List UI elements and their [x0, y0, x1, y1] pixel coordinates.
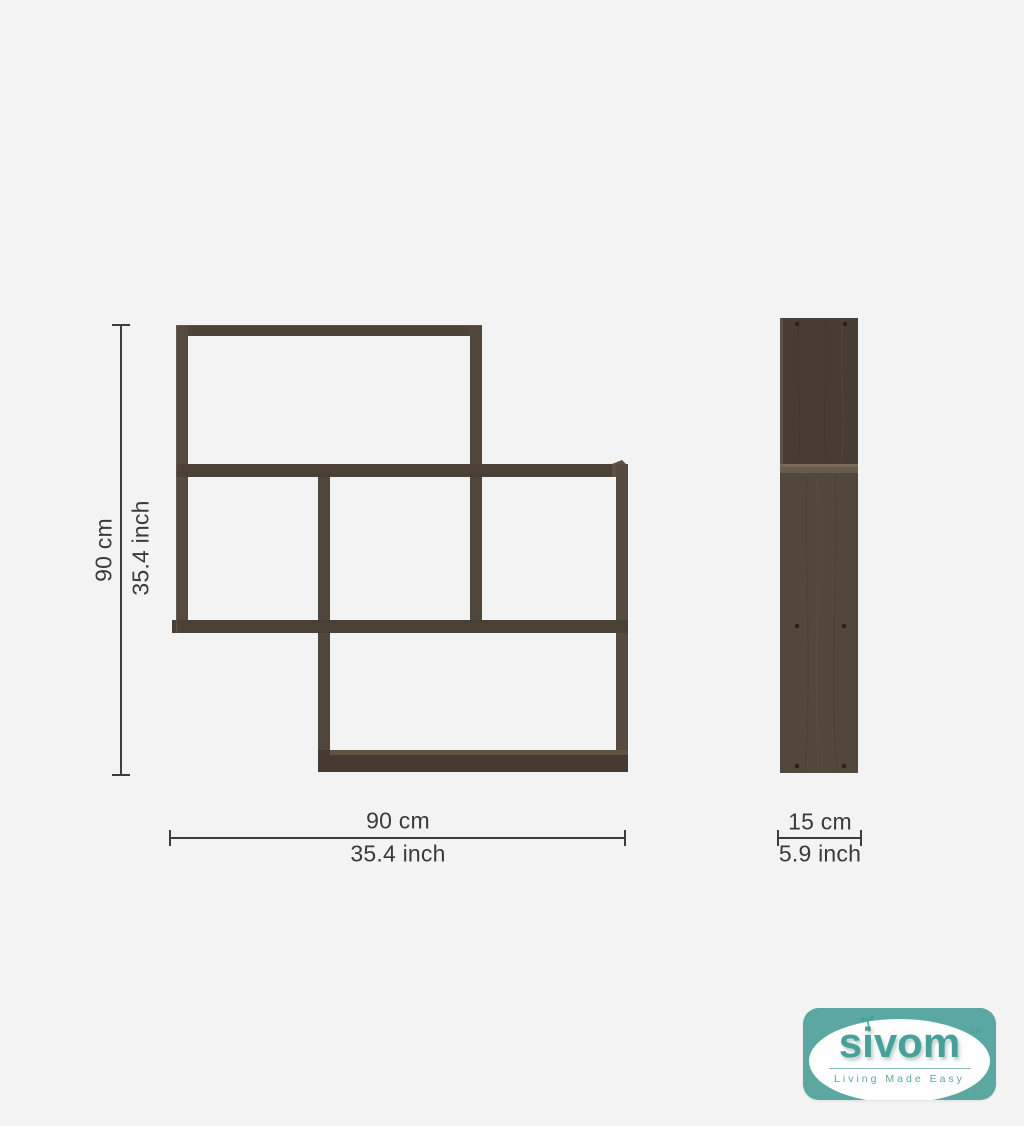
depth-dimension-line [777, 837, 862, 839]
shelf-middle-bottom [172, 620, 628, 633]
shelf-divider-left [318, 477, 330, 623]
side-shelf-ledge-highlight [780, 464, 858, 467]
brand-name: sivom [803, 1022, 996, 1064]
shelf-side-view [777, 316, 860, 775]
width-label-inch: 35.4 inch [350, 841, 445, 868]
shelf-front-view [170, 320, 632, 776]
shelf-middle-top [176, 464, 628, 477]
shelf-top-bar [176, 325, 482, 336]
height-dimension-cap-bottom [112, 774, 130, 776]
width-label-cm: 90 cm [366, 808, 430, 835]
trademark-symbol: TM [971, 1028, 982, 1035]
screw-hole [795, 322, 800, 327]
screw-hole [795, 624, 800, 629]
height-label-inch: 35.4 inch [128, 500, 155, 595]
screw-hole [842, 624, 847, 629]
screw-hole [843, 322, 848, 327]
brand-tagline: Living Made Easy [803, 1073, 996, 1085]
screw-hole [795, 764, 800, 769]
width-dimension-cap-left [169, 830, 171, 846]
shelf-right-bar [616, 464, 628, 772]
height-dimension-cap-top [112, 324, 130, 326]
depth-label-cm: 15 cm [788, 809, 852, 836]
side-panel-bottom [780, 473, 858, 773]
shelf-bottom-inner-surface [330, 750, 628, 755]
height-dimension-line [120, 325, 122, 775]
side-edge-highlight [780, 318, 783, 466]
shelf-left-bar [176, 325, 188, 633]
width-dimension-line [169, 837, 626, 839]
screw-hole [842, 764, 847, 769]
shelf-bottom-left-bar [318, 633, 330, 752]
brand-logo: sivom TM Living Made Easy [803, 1008, 996, 1100]
height-label-cm: 90 cm [91, 518, 118, 582]
width-dimension-cap-right [624, 830, 626, 846]
depth-label-inch: 5.9 inch [779, 841, 861, 868]
side-panel-top [780, 318, 858, 466]
leaf-icon [859, 1013, 879, 1033]
product-dimension-diagram: 90 cm 35.4 inch 90 cm 35.4 inch 15 cm 5.… [0, 0, 1024, 1126]
brand-divider-line [829, 1068, 971, 1069]
